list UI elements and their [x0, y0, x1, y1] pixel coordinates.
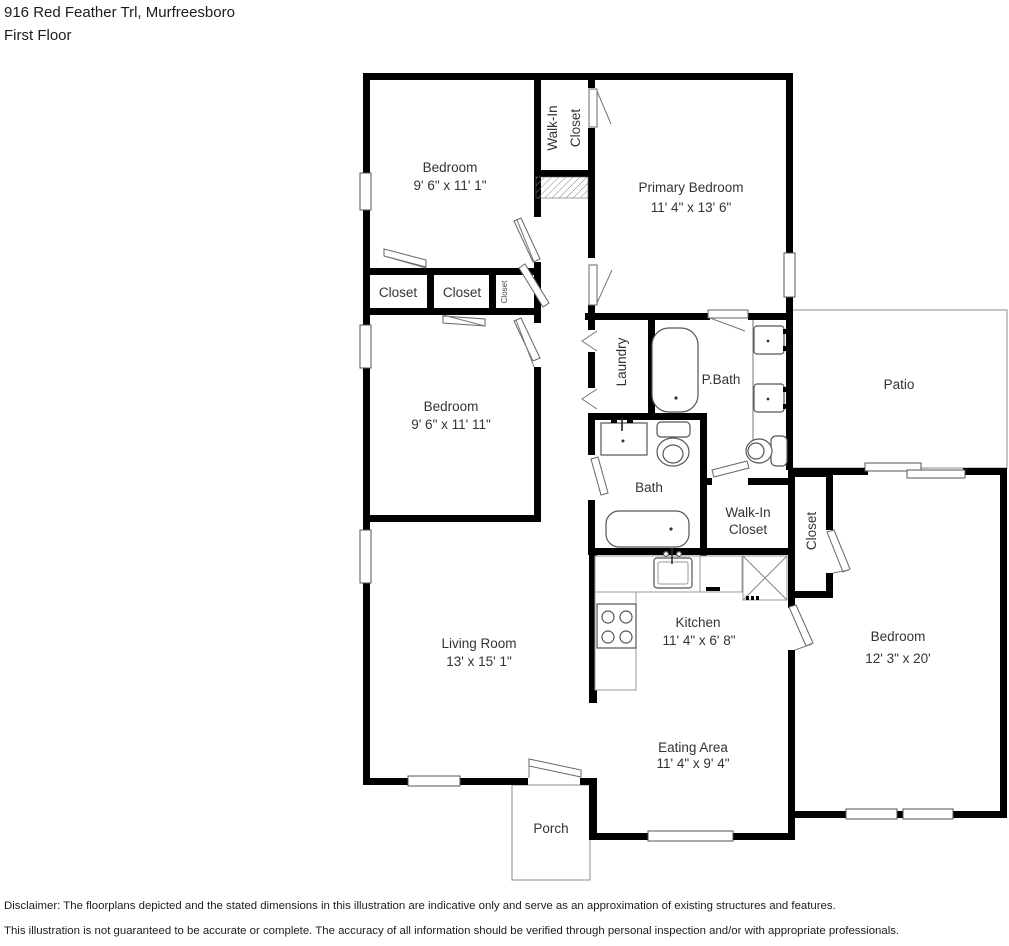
pbath-sink2-icon: [754, 384, 789, 412]
label-bath: Bath: [635, 480, 663, 495]
door-walkin-lower-icon: [712, 461, 749, 477]
label-walkin-top-1: Walk-In: [545, 105, 560, 150]
label-bedroom1-dims: 9' 6" x 11' 1": [413, 178, 486, 193]
label-bedroom3: Bedroom: [871, 629, 926, 644]
label-kitchen: Kitchen: [675, 615, 720, 630]
door-primary-icon: [589, 265, 612, 305]
door-bedroom3-icon: [789, 605, 813, 650]
door-closet1-icon: [384, 249, 426, 268]
door-closet2-icon: [443, 315, 485, 326]
pbath-bathtub-icon: [652, 328, 698, 412]
label-kitchen-dims: 11' 4" x 6' 8": [662, 633, 735, 648]
bedroom2-door-icon: [514, 318, 540, 367]
door-front-icon: [529, 759, 581, 778]
label-bedroom2: Bedroom: [424, 399, 479, 414]
label-primary: Primary Bedroom: [638, 180, 743, 195]
label-living: Living Room: [441, 636, 516, 651]
label-porch: Porch: [533, 821, 568, 836]
label-primary-dims: 11' 4" x 13' 6": [651, 200, 732, 215]
label-closet3: Closet: [500, 280, 509, 303]
label-bedroom1: Bedroom: [423, 160, 478, 175]
door-closet4-icon: [827, 530, 850, 573]
floorplan-page: 916 Red Feather Trl, Murfreesboro First …: [0, 0, 1009, 946]
disclaimer-line-2: This illustration is not guaranteed to b…: [4, 919, 1006, 944]
label-pbath: P.Bath: [702, 372, 741, 387]
label-patio: Patio: [884, 377, 915, 392]
door-bath-icon: [591, 457, 608, 495]
dishwasher-icon: [706, 587, 720, 591]
label-walkin-lower-1: Walk-In: [725, 505, 770, 520]
door-bedroom1-icon: [514, 218, 540, 262]
label-walkin-lower-2: Closet: [729, 522, 768, 537]
label-laundry: Laundry: [614, 337, 629, 386]
disclaimer-line-1: Disclaimer: The floorplans depicted and …: [4, 894, 1006, 919]
pantry-unit-icon: [743, 556, 787, 600]
pbath-toilet-icon: [746, 436, 787, 466]
label-eating: Eating Area: [658, 740, 728, 755]
label-closet4: Closet: [804, 512, 819, 551]
door-walkin-top-icon: [589, 89, 611, 127]
bath-bathtub-icon: [606, 511, 689, 547]
label-bedroom2-dims: 9' 6" x 11' 11": [411, 417, 491, 432]
label-eating-dims: 11' 4" x 9' 4": [656, 756, 729, 771]
label-closet1: Closet: [379, 285, 418, 300]
bath-sink-icon: [601, 418, 647, 455]
bath-toilet-icon: [657, 422, 690, 466]
label-living-dims: 13' x 15' 1": [446, 654, 512, 669]
pbath-sink-icon: [754, 326, 789, 354]
label-walkin-top-2: Closet: [568, 109, 583, 148]
disclaimer: Disclaimer: The floorplans depicted and …: [4, 894, 1006, 944]
label-bedroom3-dims: 12' 3" x 20': [865, 651, 931, 666]
door-pbath-icon: [708, 310, 748, 331]
stove-icon: [597, 604, 636, 648]
floor-plan-svg: Bedroom 9' 6" x 11' 1" Walk-In Closet Pr…: [0, 0, 1009, 946]
label-closet2: Closet: [443, 285, 482, 300]
